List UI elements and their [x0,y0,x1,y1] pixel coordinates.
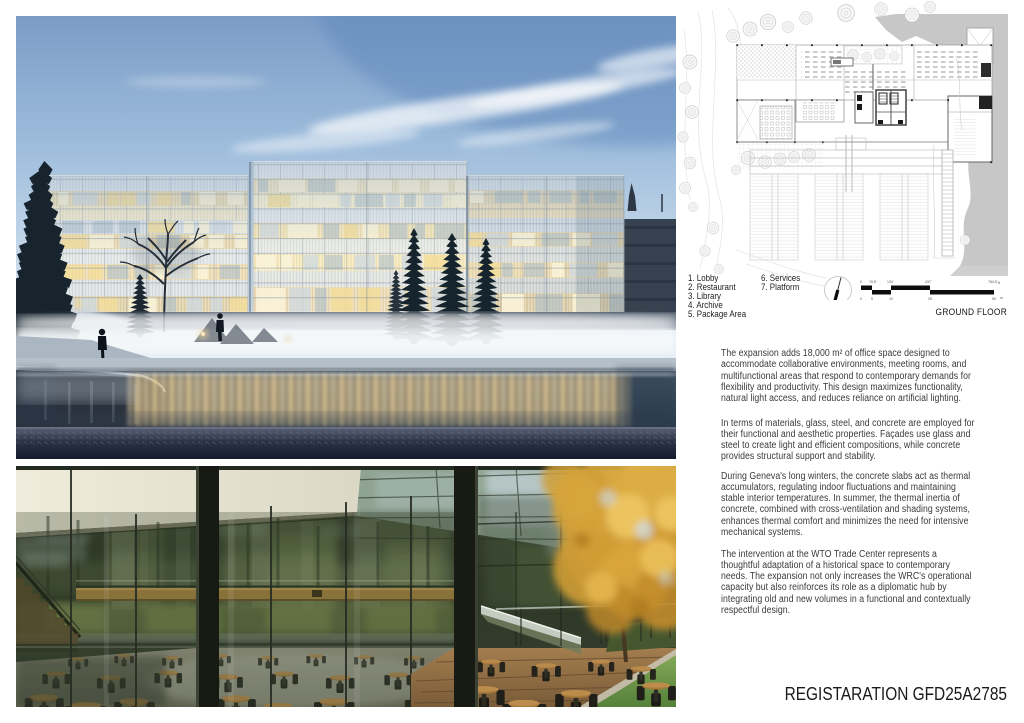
svg-text:76.5': 76.5' [869,280,877,284]
svg-text:437': 437' [925,280,932,284]
svg-text:134': 134' [887,280,894,284]
svg-text:50: 50 [992,297,996,300]
svg-text:784.5': 784.5' [988,280,998,284]
svg-text:0: 0 [860,297,862,300]
svg-text:5: 5 [871,297,873,300]
svg-text:25: 25 [928,297,932,300]
svg-text:0: 0 [860,280,862,284]
svg-text:ft: ft [998,281,1000,285]
svg-text:10: 10 [889,297,893,300]
svg-text:m: m [1000,296,1003,300]
